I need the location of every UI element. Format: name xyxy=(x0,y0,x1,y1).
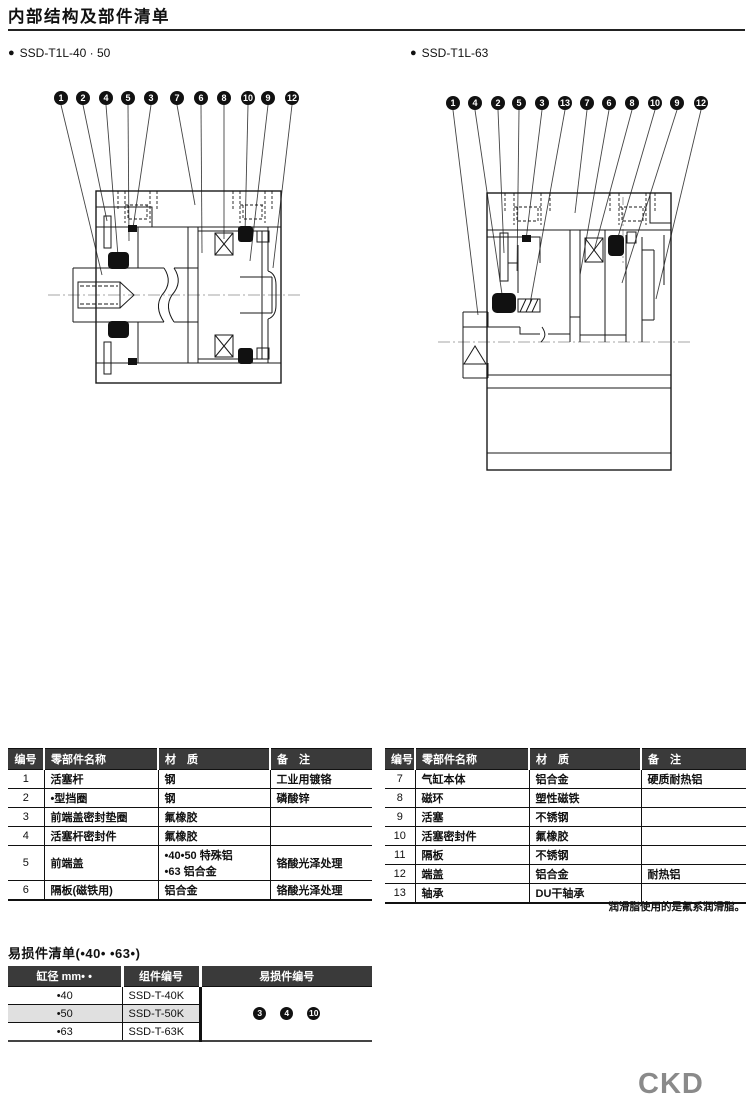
catalog-page: 内部结构及部件清单 ● SSD-T1L-40 · 50 ● SSD-T1L-63 xyxy=(0,0,750,1101)
callout-badge: 3 xyxy=(535,96,549,110)
callout-badge: 2 xyxy=(76,91,90,105)
cell-material: 铝合金 xyxy=(529,770,641,789)
col-header-note: 备 注 xyxy=(270,749,372,770)
cell-material: 铝合金 xyxy=(158,881,270,901)
cell-note: 磷酸锌 xyxy=(270,789,372,808)
cell-note xyxy=(270,827,372,846)
cell-name: 活塞杆密封件 xyxy=(44,827,158,846)
cell-note: 硬质耐热铝 xyxy=(641,770,746,789)
part-number-badge: 10 xyxy=(307,1007,320,1020)
ckd-logo: CKD xyxy=(638,1068,704,1101)
cell-kit: SSD-T-63K xyxy=(122,1023,200,1042)
cell-name: 前端盖密封垫圈 xyxy=(44,808,158,827)
cell-no: 3 xyxy=(8,808,44,827)
cell-name: 气缸本体 xyxy=(415,770,529,789)
callout-badge: 12 xyxy=(694,96,708,110)
cell-name: 隔板 xyxy=(415,846,529,865)
table-header-row: 编号 零部件名称 材 质 备 注 xyxy=(385,749,746,770)
cell-kit: SSD-T-40K xyxy=(122,987,200,1005)
cell-note xyxy=(641,808,746,827)
table-row: 5前端盖•40•50 特殊铝•63 铝合金铬酸光泽处理 xyxy=(8,846,372,881)
cell-bore: •40 xyxy=(8,987,122,1005)
callout-badge: 5 xyxy=(121,91,135,105)
bullet-icon: ● xyxy=(410,48,417,59)
callout-badge: 12 xyxy=(285,91,299,105)
cell-no: 1 xyxy=(8,770,44,789)
cell-name: 活塞 xyxy=(415,808,529,827)
callout-badge: 4 xyxy=(99,91,113,105)
cell-note xyxy=(641,827,746,846)
table-row: 10活塞密封件氟橡胶 xyxy=(385,827,746,846)
cell-note xyxy=(641,789,746,808)
table-row: 3前端盖密封垫圈氟橡胶 xyxy=(8,808,372,827)
cross-section-diagram-63: 142531376810912 xyxy=(430,85,730,485)
diagram-label-left: ● SSD-T1L-40 · 50 xyxy=(8,46,110,60)
cell-material: •40•50 特殊铝•63 铝合金 xyxy=(158,846,270,881)
callout-badge: 1 xyxy=(446,96,460,110)
cell-no: 2 xyxy=(8,789,44,808)
cell-material: 钢 xyxy=(158,789,270,808)
cell-material: 氟橡胶 xyxy=(158,827,270,846)
callout-badge: 6 xyxy=(194,91,208,105)
callout-badge: 7 xyxy=(170,91,184,105)
table-row: 9活塞不锈钢 xyxy=(385,808,746,827)
cell-material: 不锈钢 xyxy=(529,808,641,827)
callout-badge: 6 xyxy=(602,96,616,110)
cell-name: 活塞密封件 xyxy=(415,827,529,846)
callout-badge: 1 xyxy=(54,91,68,105)
cell-name: 端盖 xyxy=(415,865,529,884)
col-header-name: 零部件名称 xyxy=(415,749,529,770)
cell-material: 铝合金 xyxy=(529,865,641,884)
callout-badge: 3 xyxy=(144,91,158,105)
table-row: 12端盖铝合金耐热铝 xyxy=(385,865,746,884)
cell-name: 轴承 xyxy=(415,884,529,904)
table-header-row: 编号 零部件名称 材 质 备 注 xyxy=(8,749,372,770)
cell-note: 耐热铝 xyxy=(641,865,746,884)
cell-wear-part-numbers: 3410 xyxy=(200,987,372,1042)
part-number-badge: 3 xyxy=(253,1007,266,1020)
callout-badge: 10 xyxy=(648,96,662,110)
cell-bore: •63 xyxy=(8,1023,122,1042)
callout-badge: 4 xyxy=(468,96,482,110)
cell-no: 4 xyxy=(8,827,44,846)
cell-name: •型挡圈 xyxy=(44,789,158,808)
wear-parts-title: 易损件清单(•40• •63•) xyxy=(8,943,140,962)
col-header-wear-no: 易损件编号 xyxy=(200,966,372,987)
page-title: 内部结构及部件清单 xyxy=(8,3,170,27)
table-row: 1活塞杆钢工业用镀铬 xyxy=(8,770,372,789)
cell-material: 塑性磁铁 xyxy=(529,789,641,808)
cell-no: 8 xyxy=(385,789,415,808)
callout-badge: 8 xyxy=(625,96,639,110)
cell-no: 7 xyxy=(385,770,415,789)
col-header-note: 备 注 xyxy=(641,749,746,770)
table-row: 7气缸本体铝合金硬质耐热铝 xyxy=(385,770,746,789)
col-header-kit: 组件编号 xyxy=(122,966,200,987)
cell-bore: •50 xyxy=(8,1005,122,1023)
col-header-bore: 缸径 mm• • xyxy=(8,966,122,987)
parts-table-right: 编号 零部件名称 材 质 备 注 7气缸本体铝合金硬质耐热铝8磁环塑性磁铁9活塞… xyxy=(385,748,746,904)
dashed-ports xyxy=(505,193,655,225)
cell-material: 氟橡胶 xyxy=(158,808,270,827)
col-header-material: 材 质 xyxy=(158,749,270,770)
cell-kit: SSD-T-50K xyxy=(122,1005,200,1023)
bullet-icon: ● xyxy=(8,48,15,59)
col-header-name: 零部件名称 xyxy=(44,749,158,770)
cell-material: 不锈钢 xyxy=(529,846,641,865)
title-rule xyxy=(8,29,745,31)
cylinder-drawing xyxy=(40,85,340,405)
table-row: 6隔板(磁铁用)铝合金铬酸光泽处理 xyxy=(8,881,372,901)
part-number-badge: 4 xyxy=(280,1007,293,1020)
cell-no: 13 xyxy=(385,884,415,904)
col-header-material: 材 质 xyxy=(529,749,641,770)
callout-badge: 10 xyxy=(241,91,255,105)
cell-name: 前端盖 xyxy=(44,846,158,881)
cell-no: 6 xyxy=(8,881,44,901)
seals xyxy=(492,235,624,313)
callout-badge: 2 xyxy=(491,96,505,110)
cylinder-drawing xyxy=(430,85,730,485)
cell-material: 钢 xyxy=(158,770,270,789)
table-row: 2•型挡圈钢磷酸锌 xyxy=(8,789,372,808)
table-row: •40SSD-T-40K3410 xyxy=(8,987,372,1005)
callout-badge: 13 xyxy=(558,96,572,110)
callout-badge: 5 xyxy=(512,96,526,110)
table-header-row: 缸径 mm• • 组件编号 易损件编号 xyxy=(8,966,372,987)
callout-badge: 7 xyxy=(580,96,594,110)
callout-badge: 9 xyxy=(670,96,684,110)
wear-parts-table: 缸径 mm• • 组件编号 易损件编号 •40SSD-T-40K3410•50S… xyxy=(8,966,372,1042)
cell-no: 9 xyxy=(385,808,415,827)
cell-note xyxy=(270,808,372,827)
diagram-label-right-text: SSD-T1L-63 xyxy=(422,46,489,60)
table-row: 4活塞杆密封件氟橡胶 xyxy=(8,827,372,846)
table-row: 8磁环塑性磁铁 xyxy=(385,789,746,808)
cell-no: 5 xyxy=(8,846,44,881)
cell-note: 铬酸光泽处理 xyxy=(270,846,372,881)
cell-no: 10 xyxy=(385,827,415,846)
internal-lines xyxy=(463,193,671,453)
cell-note: 铬酸光泽处理 xyxy=(270,881,372,901)
cell-material: 氟橡胶 xyxy=(529,827,641,846)
cell-note xyxy=(641,846,746,865)
cell-name: 隔板(磁铁用) xyxy=(44,881,158,901)
cell-name: 磁环 xyxy=(415,789,529,808)
cell-name: 活塞杆 xyxy=(44,770,158,789)
cell-note: 工业用镀铬 xyxy=(270,770,372,789)
callout-badge: 9 xyxy=(261,91,275,105)
cross-section-diagram-40-50: 1245376810912 xyxy=(40,85,340,405)
diagram-label-right: ● SSD-T1L-63 xyxy=(410,46,488,60)
col-header-no: 编号 xyxy=(8,749,44,770)
diagram-label-left-text: SSD-T1L-40 · 50 xyxy=(20,46,111,60)
callout-badge: 8 xyxy=(217,91,231,105)
parts-table-left: 编号 零部件名称 材 质 备 注 1活塞杆钢工业用镀铬2•型挡圈钢磷酸锌3前端盖… xyxy=(8,748,372,901)
cell-no: 11 xyxy=(385,846,415,865)
col-header-no: 编号 xyxy=(385,749,415,770)
table-row: 11隔板不锈钢 xyxy=(385,846,746,865)
grease-note: 润滑脂使用的是氟系润滑脂。 xyxy=(609,899,746,914)
cell-no: 12 xyxy=(385,865,415,884)
cylinder-body-outline xyxy=(487,193,671,470)
